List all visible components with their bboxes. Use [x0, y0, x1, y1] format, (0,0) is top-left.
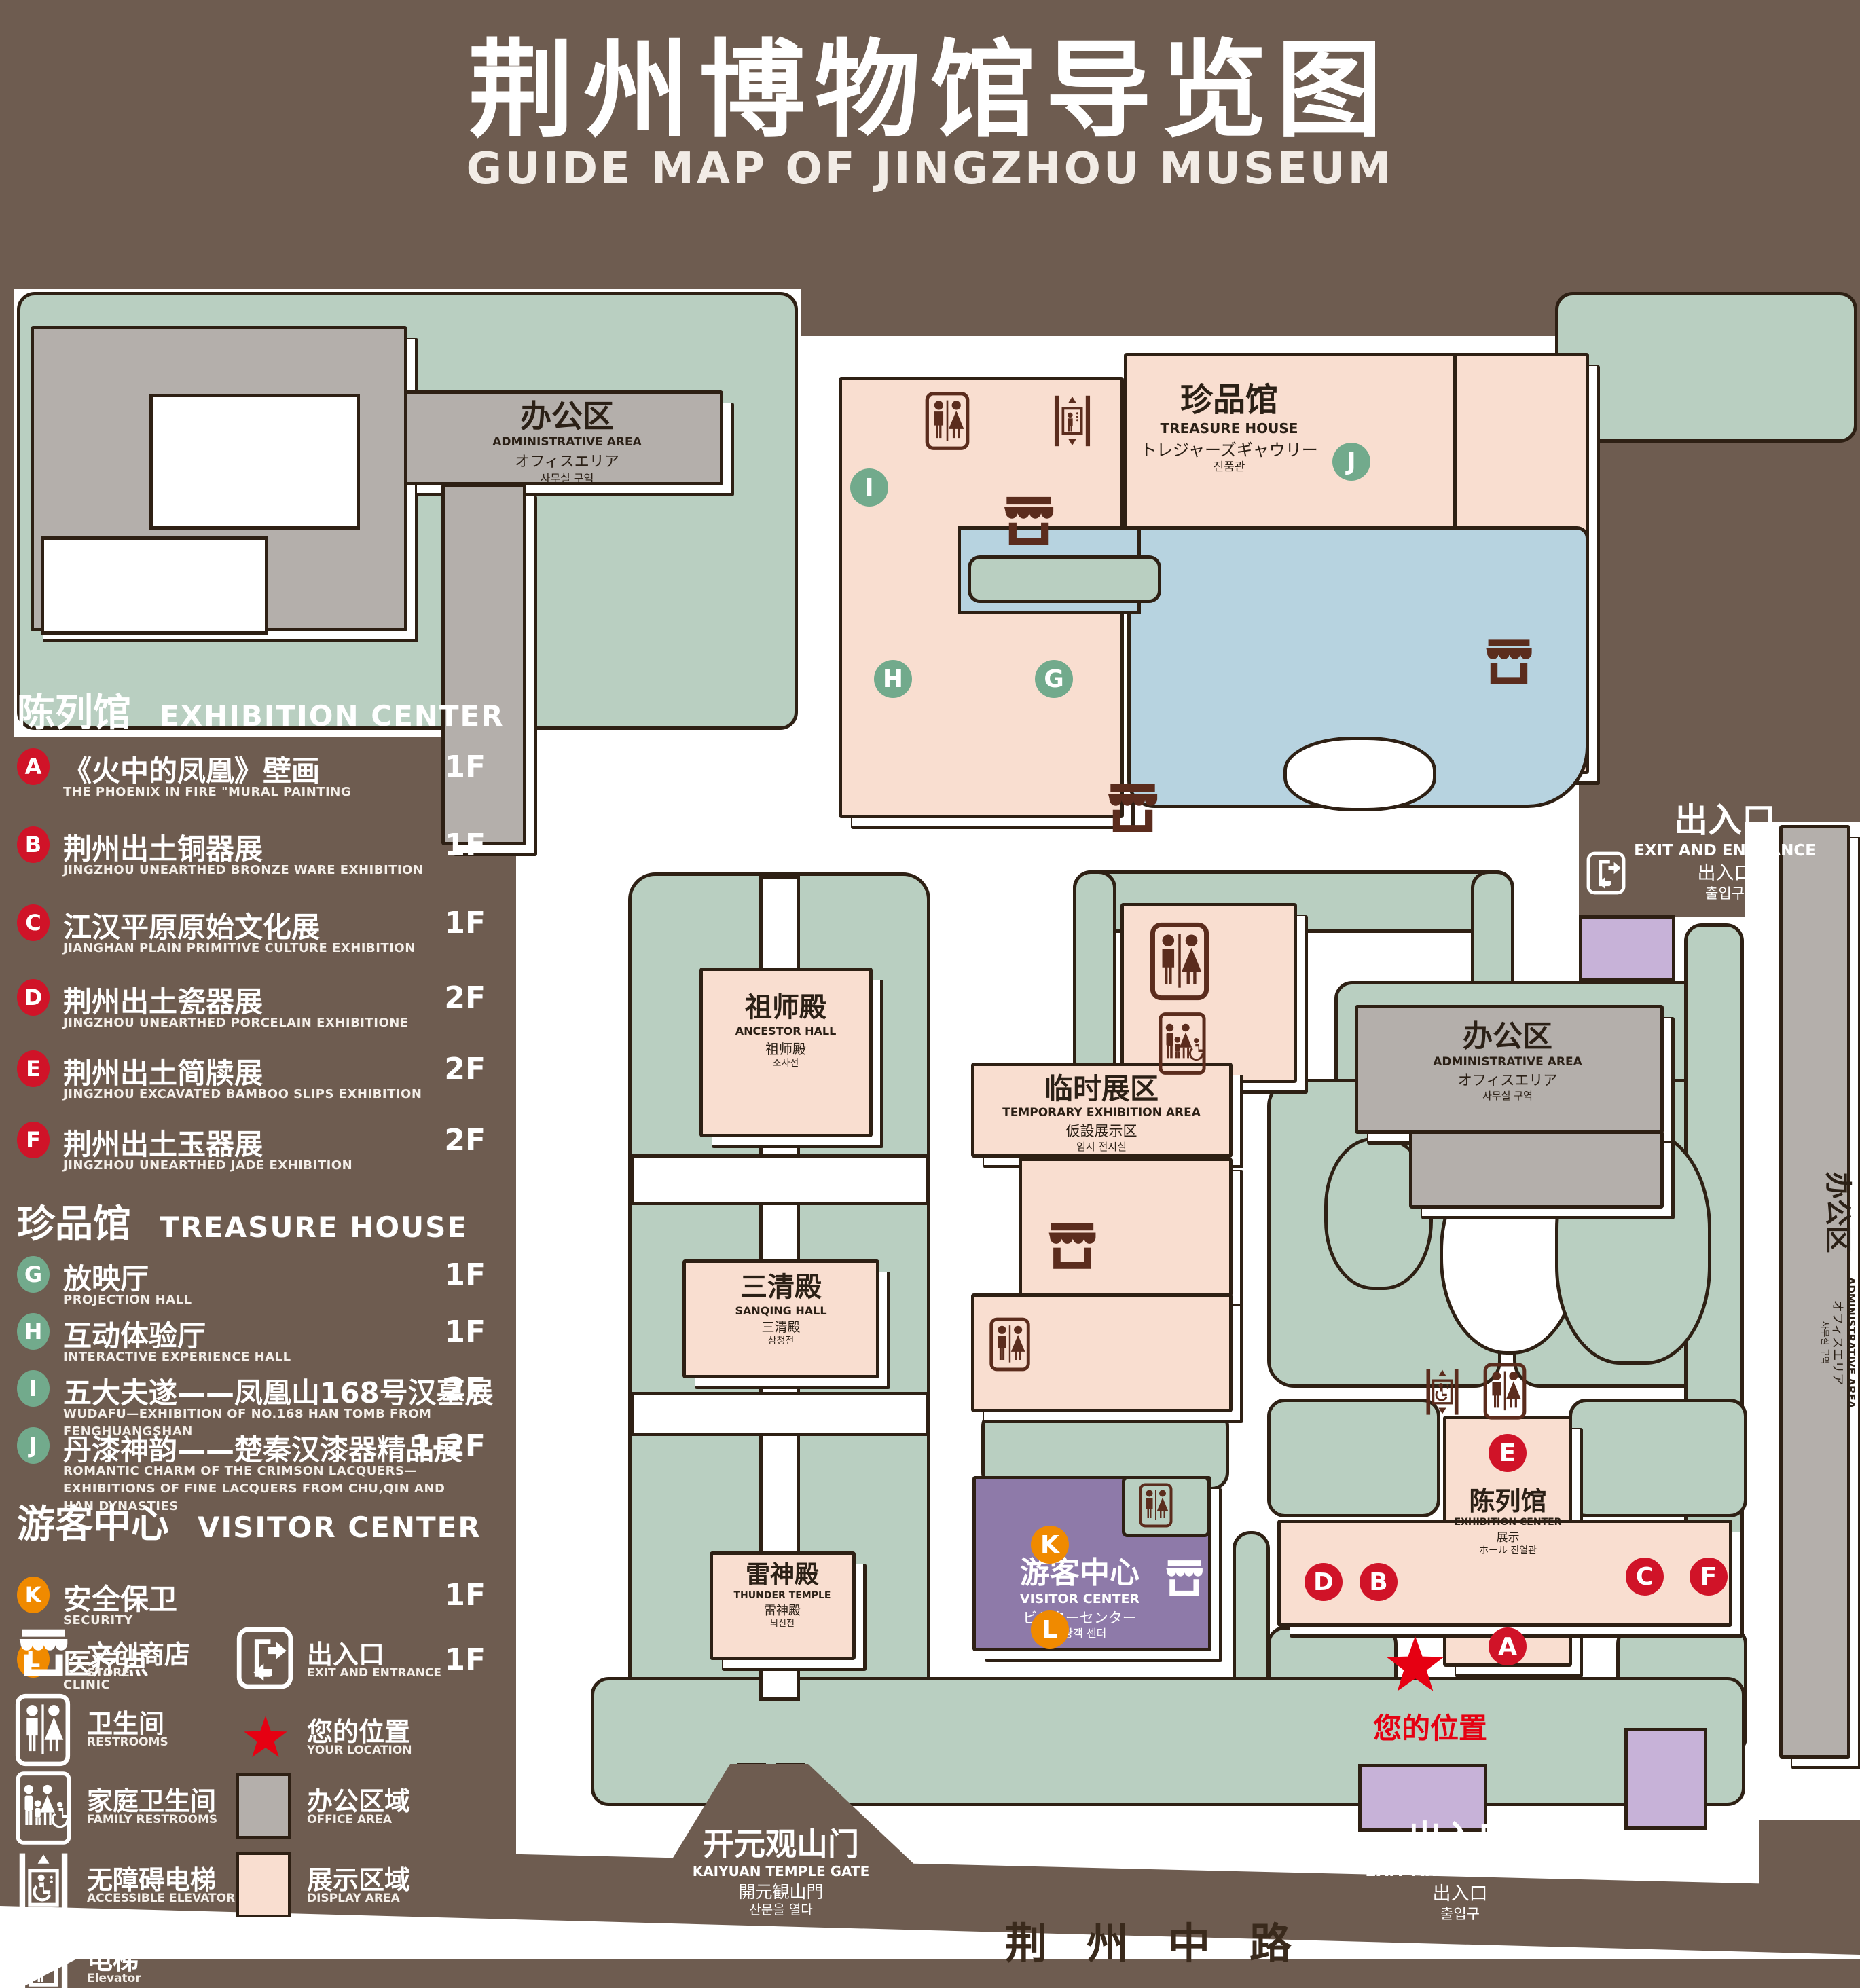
building-admin-east-ext	[1409, 1130, 1664, 1209]
store-icon	[1044, 1217, 1100, 1276]
garden-u-left	[1073, 870, 1116, 1080]
your-location-label: 您的位置	[1373, 1706, 1487, 1747]
legend-section-header: 陈列馆EXHIBITION CENTER	[17, 682, 505, 737]
label-sanqing-hall: 三清殿 SANQING HALL 三清殿 삼청전	[686, 1271, 876, 1348]
admin-nw-courtyard-1	[149, 394, 360, 530]
family-restrooms-icon	[1154, 1012, 1210, 1075]
legend-symbol-elevator: 电梯Elevator	[15, 1930, 450, 1988]
label-exit-south: 出入口 EXIT AND ENTRANCE 出入口 출입구	[1351, 1818, 1569, 1923]
garden-exh-topright	[1569, 1399, 1747, 1517]
restrooms-icon	[1149, 922, 1210, 1001]
map-badge-C: C	[1626, 1558, 1664, 1596]
store-icon	[1482, 633, 1536, 691]
family-restrooms-icon	[15, 1771, 72, 1845]
legend-section-header: 珍品馆TREASURE HOUSE	[17, 1194, 468, 1249]
display-area-swatch	[236, 1852, 291, 1917]
gate-south-2	[1624, 1728, 1707, 1830]
your-location-star	[1385, 1635, 1445, 1695]
pond-island	[968, 555, 1161, 603]
label-exit-ne: 出入口 EXIT AND ENTRANCE 出入口 출입구	[1630, 800, 1820, 903]
label-temporary-area: 临时展区 TEMPORARY EXHIBITION AREA 仮設展示区 임시 …	[979, 1071, 1224, 1153]
restrooms-icon	[15, 1693, 71, 1767]
restrooms-icon	[988, 1317, 1032, 1372]
map-badge-A: A	[1489, 1627, 1527, 1665]
restrooms-icon	[925, 388, 970, 454]
map-badge-G: G	[1035, 660, 1073, 698]
restrooms-icon	[1483, 1358, 1527, 1424]
legend-symbol-exit: 出入口EXIT AND ENTRANCE	[236, 1624, 671, 1706]
map-badge-F: F	[1690, 1558, 1728, 1596]
map-badge-K: K	[1031, 1526, 1069, 1564]
temple-path-sep1	[630, 1154, 929, 1205]
legend-symbol-office-area: 办公区域OFFICE AREA	[236, 1771, 671, 1852]
page-subtitle: GUIDE MAP OF JINGZHOU MUSEUM	[0, 144, 1860, 194]
label-admin-strip: 办公区 ADMINISTRATIVE AREA オフィスエリア 사무실 구역	[1769, 849, 1857, 1731]
label-exhibition-center: 陈列馆 EXHIBITION CENTER 展示 ホール 진열관	[1445, 1486, 1571, 1557]
map-badge-B: B	[1360, 1563, 1398, 1601]
accessible-elevator-icon	[15, 1849, 72, 1926]
legend-symbol-display-area: 展示区域DISPLAY AREA	[236, 1849, 671, 1931]
elevator-icon	[15, 1930, 72, 1988]
temple-path-sep2	[630, 1392, 929, 1436]
store-icon	[1163, 1555, 1206, 1602]
map-badge-I: I	[850, 468, 888, 507]
map-badge-E: E	[1489, 1434, 1527, 1472]
store-icon	[1000, 490, 1058, 553]
label-thunder-temple: 雷神殿 THUNDER TEMPLE 雷神殿 뇌신전	[711, 1560, 854, 1630]
label-treasure-house: 珍品馆 TREASURE HOUSE トレジャーズギャウリー 진품관	[1093, 380, 1365, 475]
store-icon	[15, 1624, 72, 1682]
garden-exh-topleft	[1267, 1399, 1440, 1517]
map-badge-D: D	[1305, 1563, 1343, 1601]
accessible-elevator-icon	[1423, 1361, 1461, 1423]
exit-icon	[1586, 846, 1626, 900]
gate-ne-entrance	[1579, 915, 1675, 982]
map-badge-H: H	[874, 660, 912, 698]
store-icon	[1104, 777, 1162, 840]
restrooms-icon	[1138, 1483, 1173, 1528]
admin-nw-courtyard-2	[41, 536, 268, 635]
label-admin-east: 办公区 ADMINISTRATIVE AREA オフィスエリア 사무실 구역	[1385, 1018, 1630, 1102]
elevator-icon	[1051, 388, 1093, 454]
label-visitor-center: 游客中心 VISITOR CENTER ビジターセンター 관광객 센터	[978, 1555, 1182, 1640]
page-title: 荆州博物馆导览图	[0, 4, 1860, 158]
label-admin-nw: 办公区 ADMINISTRATIVE AREA オフィスエリア 사무실 구역	[445, 397, 689, 485]
legend-section-header: 游客中心VISITOR CENTER	[17, 1494, 481, 1549]
your-location-icon	[243, 1715, 288, 1760]
map-badge-L: L	[1031, 1610, 1069, 1649]
road-name: 荆州中路	[1005, 1909, 1331, 1970]
exit-icon	[236, 1624, 293, 1692]
garden-northeast	[1555, 292, 1857, 443]
guide-map-poster: 荆州博物馆导览图 GUIDE MAP OF JINGZHOU MUSEUM	[0, 0, 1860, 1988]
label-gate: 开元观山门 KAIYUAN TEMPLE GATE 開元観山門 산문을 열다	[645, 1825, 917, 1918]
pond-white-blob	[1283, 737, 1436, 811]
map-badge-J: J	[1332, 443, 1370, 481]
office-area-swatch	[236, 1773, 291, 1839]
label-ancestor-hall: 祖师殿 ANCESTOR HALL 祖师殿 조사전	[701, 991, 871, 1069]
